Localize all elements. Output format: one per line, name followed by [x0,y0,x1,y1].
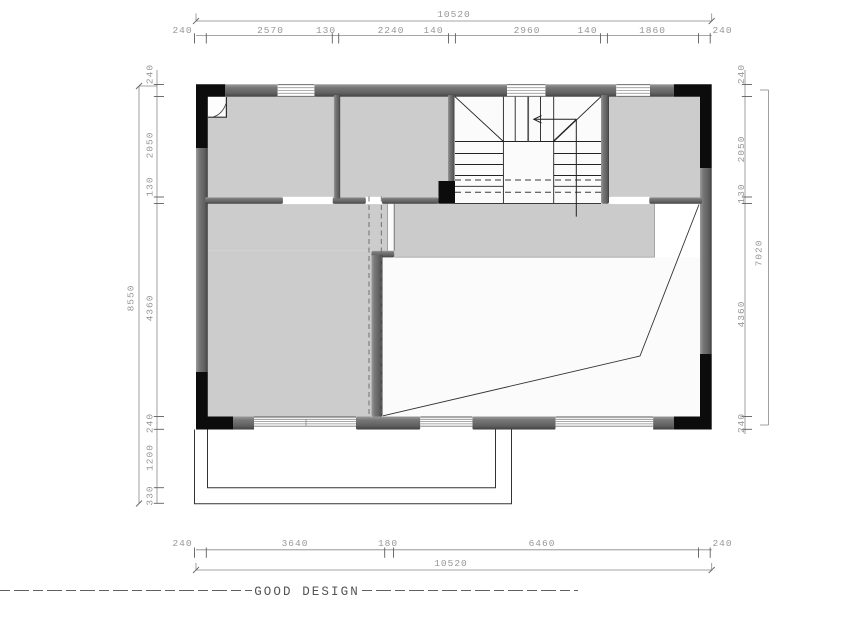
svg-text:7020: 7020 [754,240,765,267]
svg-text:140: 140 [423,25,443,36]
svg-text:1200: 1200 [145,444,156,471]
svg-text:4360: 4360 [736,301,747,328]
svg-text:330: 330 [145,485,156,505]
svg-text:240: 240 [145,64,156,84]
svg-text:140: 140 [577,25,597,36]
svg-text:240: 240 [145,413,156,433]
svg-text:240: 240 [736,413,747,433]
svg-text:6460: 6460 [529,538,556,549]
svg-text:240: 240 [172,25,192,36]
svg-text:2050: 2050 [145,132,156,159]
svg-text:2240: 2240 [378,25,405,36]
svg-text:240: 240 [172,538,192,549]
svg-text:3640: 3640 [282,538,309,549]
svg-text:130: 130 [736,183,747,203]
svg-text:8550: 8550 [126,285,137,312]
svg-text:130: 130 [145,176,156,196]
svg-text:130: 130 [316,25,336,36]
svg-text:1860: 1860 [639,25,666,36]
svg-text:2570: 2570 [257,25,284,36]
svg-text:10520: 10520 [437,9,471,20]
svg-text:GOOD DESIGN: GOOD DESIGN [254,585,360,599]
svg-text:180: 180 [378,538,398,549]
svg-text:10520: 10520 [434,558,468,569]
svg-text:2960: 2960 [514,25,541,36]
svg-text:240: 240 [712,538,732,549]
svg-text:4360: 4360 [145,295,156,322]
svg-text:2050: 2050 [736,136,747,163]
svg-text:240: 240 [736,64,747,84]
svg-text:240: 240 [712,25,732,36]
